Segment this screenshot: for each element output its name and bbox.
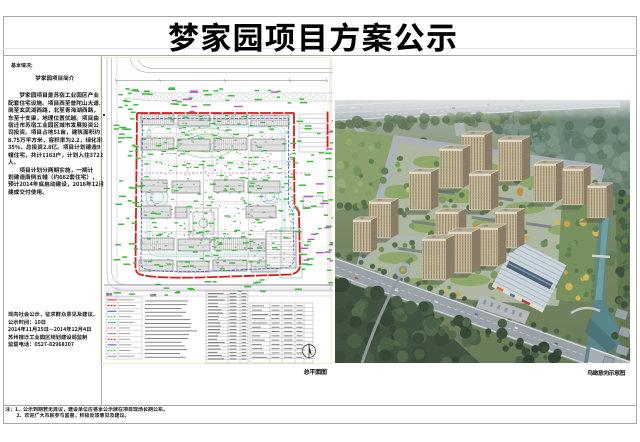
svg-text:图例: 图例: [106, 292, 112, 297]
svg-text:说明: 说明: [150, 293, 156, 298]
